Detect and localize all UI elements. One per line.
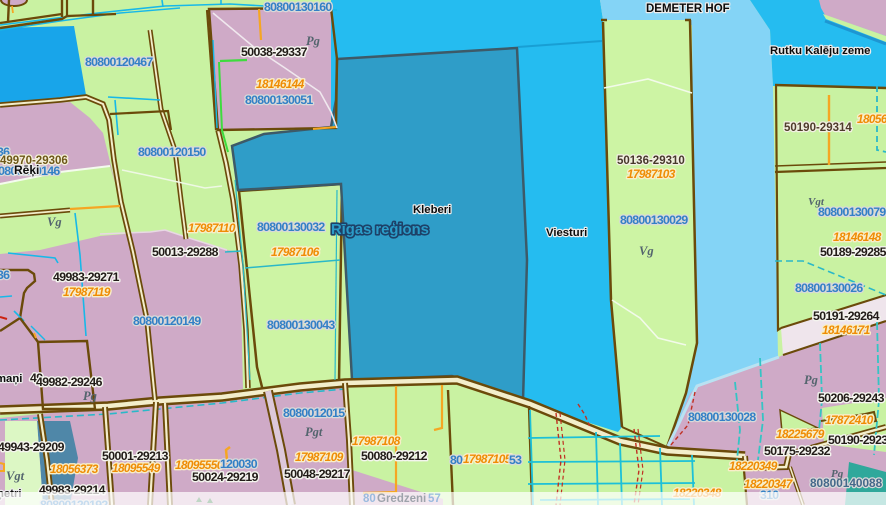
svg-text:17872410: 17872410 bbox=[825, 413, 874, 427]
svg-text:18220349: 18220349 bbox=[729, 459, 778, 473]
svg-text:50080-29212: 50080-29212 bbox=[361, 449, 428, 463]
svg-text:80: 80 bbox=[450, 453, 463, 467]
svg-text:50038-29337: 50038-29337 bbox=[241, 45, 308, 59]
svg-text:80800120467: 80800120467 bbox=[85, 55, 153, 69]
svg-text:80800130079: 80800130079 bbox=[818, 205, 886, 219]
svg-text:53: 53 bbox=[509, 453, 522, 467]
svg-text:50206-29243: 50206-29243 bbox=[818, 391, 885, 405]
svg-text:49943-29209: 49943-29209 bbox=[0, 440, 65, 454]
svg-text:80800130160: 80800130160 bbox=[264, 0, 332, 14]
svg-text:18146144: 18146144 bbox=[256, 77, 305, 91]
svg-text:18225679: 18225679 bbox=[776, 427, 825, 441]
svg-text:Viesturi: Viesturi bbox=[546, 227, 587, 239]
svg-text:18146171: 18146171 bbox=[822, 323, 870, 337]
svg-text:17987119: 17987119 bbox=[63, 285, 111, 299]
svg-text:maņi: maņi bbox=[0, 373, 22, 385]
svg-text:18056373: 18056373 bbox=[50, 462, 99, 476]
svg-text:80800130026: 80800130026 bbox=[795, 281, 863, 295]
svg-text:50191-29264: 50191-29264 bbox=[813, 309, 880, 323]
svg-text:50048-29217: 50048-29217 bbox=[284, 467, 351, 481]
svg-text:49982-29246: 49982-29246 bbox=[36, 375, 103, 389]
svg-text:Vg: Vg bbox=[47, 215, 62, 229]
svg-text:80800130051: 80800130051 bbox=[245, 93, 313, 107]
svg-text:Vg: Vg bbox=[639, 244, 654, 258]
svg-text:50190-29314: 50190-29314 bbox=[784, 122, 852, 134]
svg-text:17987108: 17987108 bbox=[352, 434, 401, 448]
svg-text:DEMETER HOF: DEMETER HOF bbox=[646, 3, 730, 15]
svg-text:Pg: Pg bbox=[804, 373, 818, 387]
svg-text:18095549: 18095549 bbox=[112, 461, 161, 475]
svg-text:80800130043: 80800130043 bbox=[267, 318, 335, 332]
svg-text:49983-29271: 49983-29271 bbox=[53, 270, 120, 284]
svg-text:8080012015: 8080012015 bbox=[283, 406, 345, 420]
svg-text:80: 80 bbox=[363, 493, 376, 505]
svg-text:120030: 120030 bbox=[220, 457, 258, 471]
svg-text:57: 57 bbox=[428, 493, 441, 505]
svg-text:Rēķi: Rēķi bbox=[14, 163, 39, 177]
svg-text:50013-29288: 50013-29288 bbox=[152, 245, 219, 259]
svg-text:80800120150: 80800120150 bbox=[138, 145, 206, 159]
svg-text:17987109: 17987109 bbox=[295, 450, 344, 464]
svg-text:Rutku Kalēju zeme: Rutku Kalēju zeme bbox=[770, 45, 870, 57]
svg-text:50190-2923: 50190-2923 bbox=[828, 433, 886, 447]
svg-text:Pg: Pg bbox=[831, 468, 844, 480]
svg-text:Vgt: Vgt bbox=[6, 469, 25, 483]
svg-text:80800130032: 80800130032 bbox=[257, 220, 325, 234]
svg-text:80800120149: 80800120149 bbox=[133, 314, 201, 328]
svg-text:80800130028: 80800130028 bbox=[688, 410, 756, 424]
svg-text:18056: 18056 bbox=[857, 112, 886, 126]
svg-text:80800130029: 80800130029 bbox=[620, 213, 688, 227]
svg-text:17987103: 17987103 bbox=[627, 167, 676, 181]
svg-text:Kleberi: Kleberi bbox=[413, 204, 451, 216]
svg-text:18146148: 18146148 bbox=[833, 230, 882, 244]
svg-text:50136-29310: 50136-29310 bbox=[617, 155, 685, 167]
svg-text:50175-29232: 50175-29232 bbox=[764, 444, 831, 458]
svg-text:50189-29285: 50189-29285 bbox=[820, 245, 886, 259]
svg-text:Rīgas reģions: Rīgas reģions bbox=[331, 222, 429, 238]
svg-text:17987106: 17987106 bbox=[271, 245, 320, 259]
svg-text:36: 36 bbox=[0, 268, 10, 282]
svg-text:Pg: Pg bbox=[306, 34, 320, 48]
svg-text:80800140088: 80800140088 bbox=[810, 476, 883, 490]
svg-text:Gredzeni: Gredzeni bbox=[377, 493, 426, 505]
svg-text:17987110: 17987110 bbox=[188, 221, 236, 235]
svg-text:Pgt: Pgt bbox=[305, 425, 323, 439]
svg-text:50024-29219: 50024-29219 bbox=[192, 470, 259, 484]
svg-text:Pg: Pg bbox=[83, 389, 97, 403]
svg-text:17987105: 17987105 bbox=[463, 452, 512, 466]
